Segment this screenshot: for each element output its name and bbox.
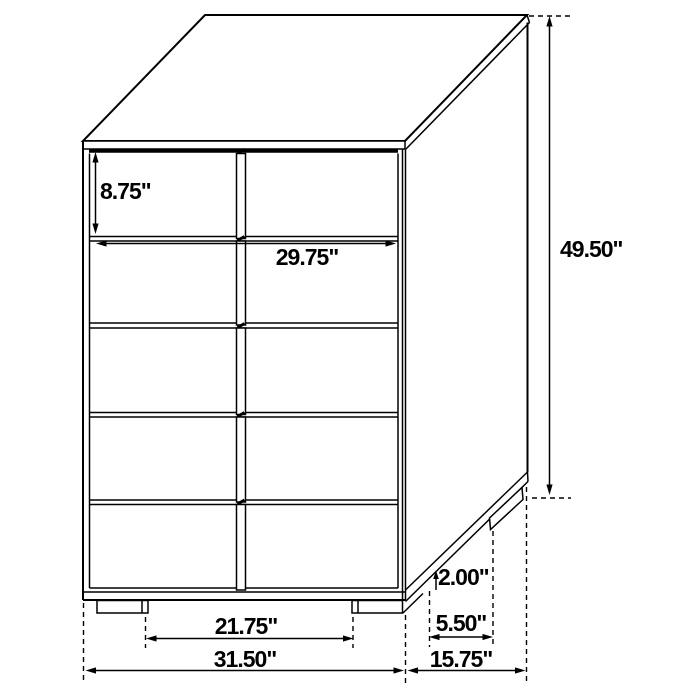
- label-foot-span-width: 21.75": [215, 613, 278, 639]
- dimension-overall-height: 49.50": [546, 16, 622, 495]
- label-drawer-front-width: 29.75": [276, 244, 339, 270]
- dimension-foot-inset-depth: 5.50": [429, 610, 493, 640]
- dimension-foot-span-width: 21.75": [146, 613, 354, 642]
- label-overall-width: 31.50": [214, 646, 277, 672]
- drawer-center-handles: [237, 150, 246, 591]
- chest-dimension-drawing: 8.75" 29.75" 49.50" 2.00" 21.75" 5.50" 3…: [0, 0, 700, 700]
- label-top-drawer-height: 8.75": [100, 178, 151, 204]
- chest-top-panel: [83, 15, 530, 149]
- dimension-overall-depth: 15.75": [408, 646, 526, 674]
- dimension-base-height: 2.00": [433, 564, 489, 590]
- dimension-top-drawer-height: 8.75": [92, 152, 150, 234]
- label-foot-inset-depth: 5.50": [436, 610, 487, 636]
- label-overall-height: 49.50": [560, 236, 623, 262]
- label-base-height: 2.00": [438, 564, 489, 590]
- label-overall-depth: 15.75": [430, 646, 493, 672]
- dimension-overall-width: 31.50": [86, 646, 405, 674]
- chest-feet: [97, 488, 523, 614]
- dimension-diagram: 8.75" 29.75" 49.50" 2.00" 21.75" 5.50" 3…: [0, 0, 700, 700]
